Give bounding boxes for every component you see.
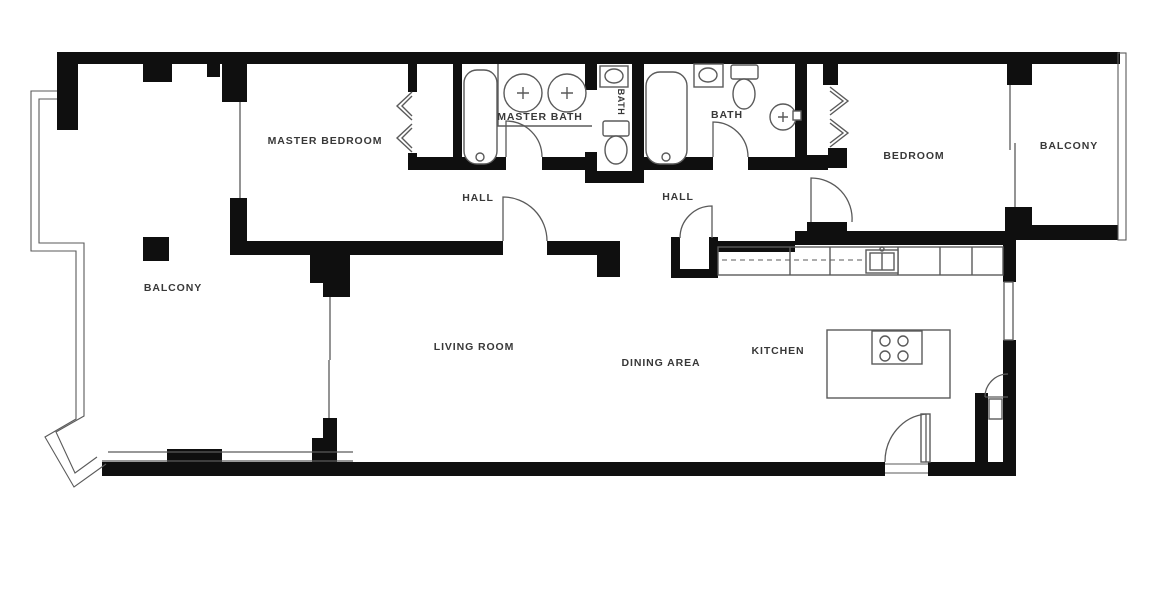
wall-segment <box>928 462 1016 476</box>
wall-segment <box>408 63 417 92</box>
kitchen-sink-icon <box>866 247 898 273</box>
doors <box>503 121 1008 462</box>
wall-segment <box>542 157 585 170</box>
room-label-water-closet: BATH <box>616 89 626 116</box>
balcony-railing <box>1118 53 1126 240</box>
wall-segment <box>632 52 644 183</box>
wall-segment <box>748 157 795 170</box>
room-label-dining-area: DINING AREA <box>622 357 701 369</box>
toilet-icon <box>603 121 629 164</box>
wall-segment <box>585 171 644 183</box>
wall-segment <box>453 63 462 170</box>
wall-segment <box>975 393 988 470</box>
wall-segment <box>1005 207 1032 240</box>
room-label-bedroom: BEDROOM <box>883 150 944 162</box>
wall-segment <box>807 155 828 170</box>
hall-living-door-arc <box>503 197 547 241</box>
window <box>1004 282 1013 340</box>
wall-segment <box>408 153 417 170</box>
room-label-living-room: LIVING ROOM <box>434 341 514 353</box>
wall-segment <box>143 237 169 261</box>
bathtub-icon <box>464 70 497 164</box>
wall-segment <box>57 52 1120 64</box>
floor-plan: MASTER BEDROOM MASTER BATH BATH BATH HAL… <box>0 0 1165 590</box>
room-label-bath: BATH <box>711 109 743 121</box>
wall-segment <box>230 198 247 248</box>
stove-icon <box>872 331 922 364</box>
wall-segment <box>709 237 718 278</box>
wall-segment <box>310 255 350 283</box>
wall-segment <box>1003 240 1016 282</box>
kitchen-island <box>827 330 950 398</box>
room-label-master-bedroom: MASTER BEDROOM <box>268 135 383 147</box>
bathtub-icon <box>646 72 687 164</box>
room-label-hall-left: HALL <box>462 192 494 204</box>
room-label-balcony-left: BALCONY <box>144 282 202 294</box>
bedroom-door-arc <box>811 178 852 222</box>
room-label-balcony-upper-right: BALCONY <box>1040 140 1098 152</box>
closet-bifold-icon <box>397 92 412 152</box>
wall-segment <box>597 241 620 277</box>
hall-dining-door-arc <box>680 206 712 238</box>
wall-segment <box>1032 225 1118 240</box>
wall-segment <box>1007 62 1032 85</box>
wall-segment <box>230 241 503 255</box>
room-label-master-bath: MASTER BATH <box>497 111 583 123</box>
wall-segment <box>828 148 847 168</box>
wall-segment <box>323 283 350 297</box>
entry-threshold <box>885 464 928 473</box>
room-label-hall-right: HALL <box>662 191 694 203</box>
balcony-railing <box>39 99 97 473</box>
closet-bifold-icon <box>830 87 848 147</box>
balcony-railing <box>31 91 106 487</box>
toilet-icon <box>731 65 758 109</box>
entry-door-arc <box>885 414 926 462</box>
wall-segment <box>1003 340 1016 476</box>
walls <box>57 52 1120 476</box>
wall-segment <box>222 52 247 102</box>
sliding-door <box>1010 85 1015 207</box>
floor-plan-drawing: MASTER BEDROOM MASTER BATH BATH BATH HAL… <box>0 0 1165 590</box>
sink-icon <box>694 64 723 87</box>
niche-shelf <box>989 399 1002 419</box>
window <box>329 297 330 418</box>
bath-door-arc <box>713 122 748 157</box>
fixtures <box>397 64 1003 462</box>
wall-segment <box>207 63 220 77</box>
sink-icon <box>600 66 628 87</box>
wall-segment <box>585 63 597 90</box>
room-label-kitchen: KITCHEN <box>752 345 805 357</box>
wall-segment <box>57 52 78 130</box>
wall-segment <box>167 449 222 462</box>
wall-segment <box>823 64 838 85</box>
wall-segment <box>102 462 885 476</box>
wall-segment <box>807 222 847 236</box>
wall-segment <box>312 438 337 464</box>
wall-segment <box>143 63 172 82</box>
